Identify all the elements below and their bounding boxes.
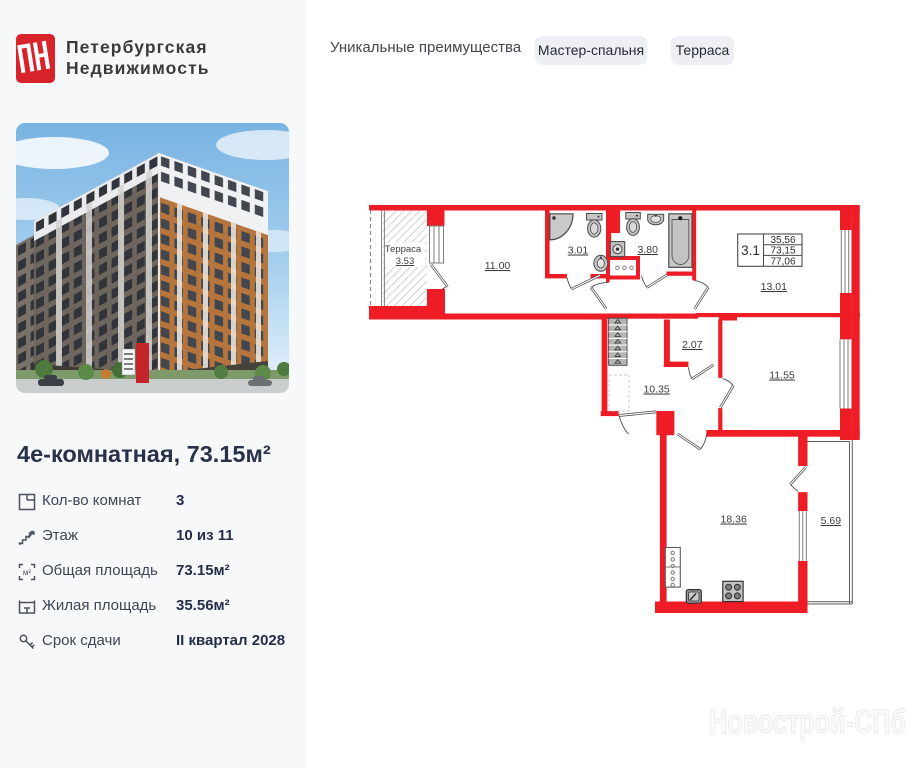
svg-text:Новострой-СПб: Новострой-СПб bbox=[709, 703, 906, 740]
svg-text:3.53: 3.53 bbox=[396, 256, 415, 267]
svg-text:77,06: 77,06 bbox=[770, 256, 795, 267]
svg-text:18.36: 18.36 bbox=[721, 514, 747, 526]
svg-text:10.35: 10.35 bbox=[643, 384, 669, 396]
svg-text:13.01: 13.01 bbox=[761, 281, 787, 293]
svg-text:3.80: 3.80 bbox=[637, 244, 658, 256]
svg-text:11.55: 11.55 bbox=[769, 370, 795, 382]
svg-text:2.07: 2.07 bbox=[682, 339, 703, 351]
svg-text:3.1: 3.1 bbox=[741, 243, 760, 258]
svg-text:73,15: 73,15 bbox=[770, 246, 795, 257]
svg-text:Терраса: Терраса bbox=[385, 244, 422, 255]
svg-text:5.69: 5.69 bbox=[821, 515, 842, 527]
svg-text:11.00: 11.00 bbox=[485, 260, 511, 272]
svg-text:3.01: 3.01 bbox=[568, 245, 589, 257]
svg-text:35,56: 35,56 bbox=[770, 235, 795, 246]
